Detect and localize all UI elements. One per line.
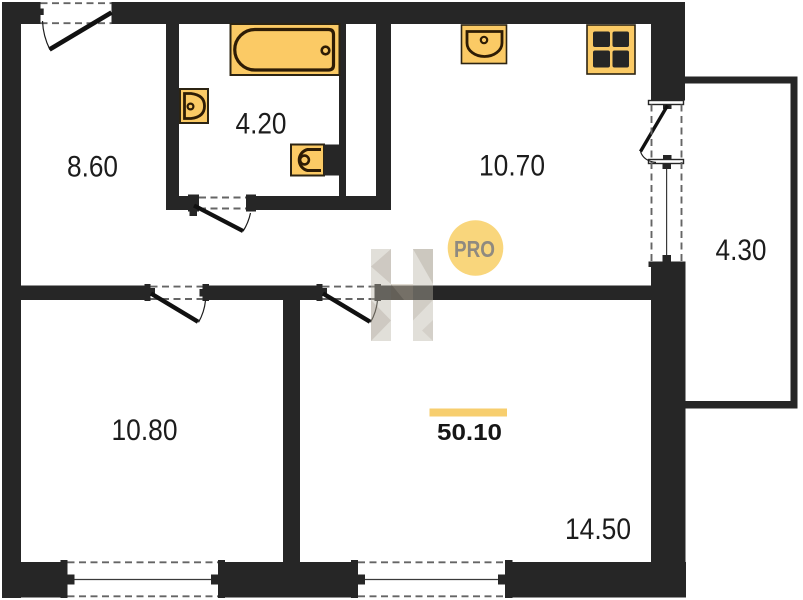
svg-text:PRO: PRO xyxy=(454,236,495,262)
svg-text:4.20: 4.20 xyxy=(236,108,287,141)
svg-text:10.70: 10.70 xyxy=(479,149,545,182)
svg-text:50.10: 50.10 xyxy=(437,419,502,445)
svg-text:4.30: 4.30 xyxy=(716,234,767,267)
svg-text:10.80: 10.80 xyxy=(112,414,178,447)
svg-text:8.60: 8.60 xyxy=(67,151,118,184)
svg-text:14.50: 14.50 xyxy=(565,513,631,546)
